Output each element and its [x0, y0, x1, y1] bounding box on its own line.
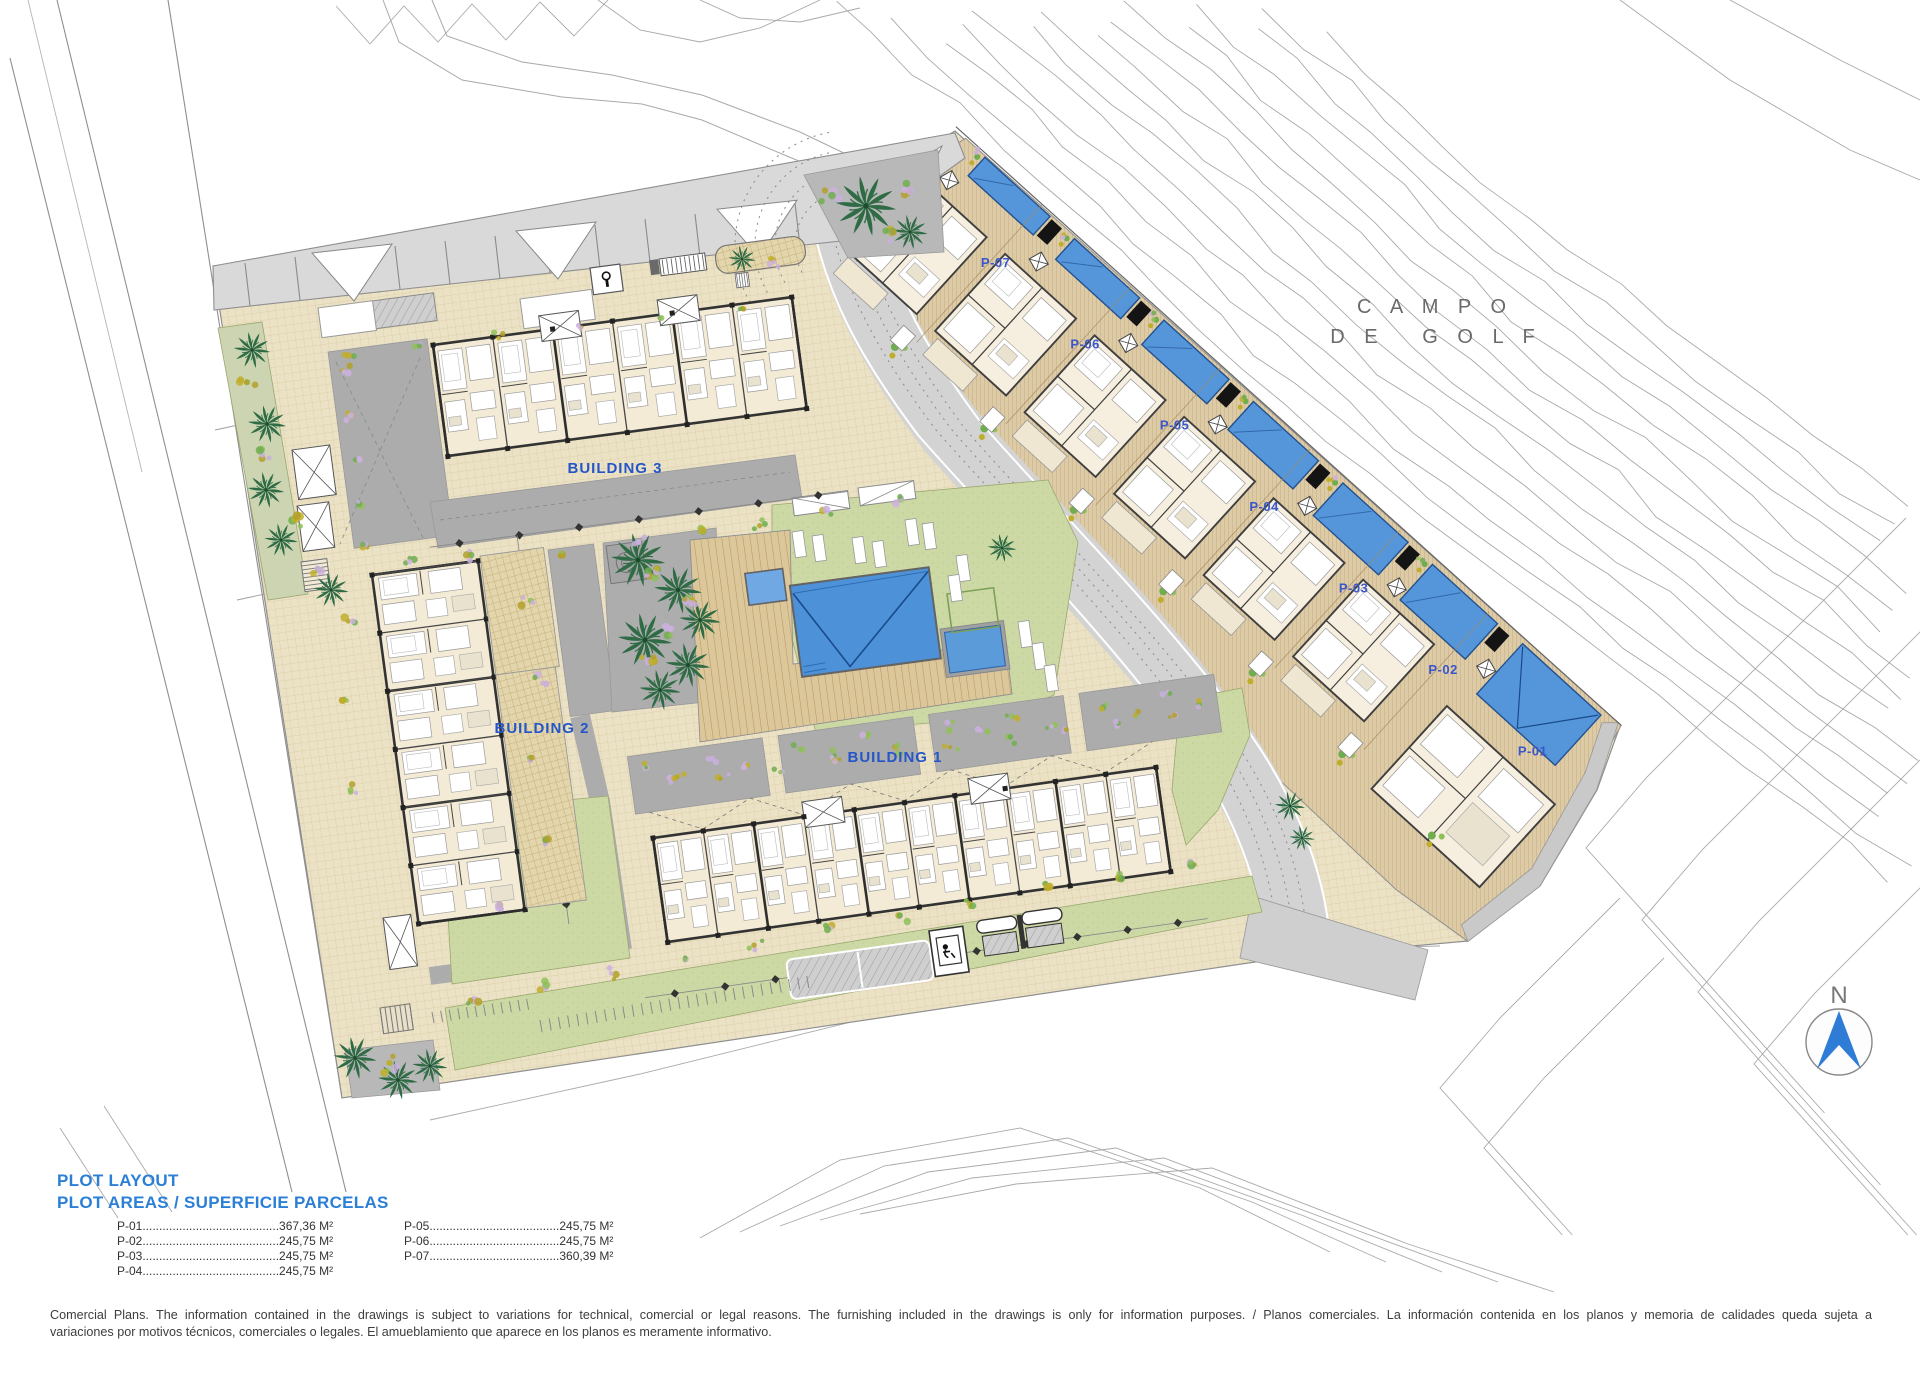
svg-text:P-07: P-07 — [981, 255, 1010, 270]
svg-text:BUILDING 1: BUILDING 1 — [847, 749, 942, 766]
svg-text:P-03: P-03 — [1339, 581, 1368, 596]
svg-text:P-06: P-06 — [1070, 336, 1099, 351]
svg-text:BUILDING 3: BUILDING 3 — [567, 460, 662, 477]
svg-text:P-02: P-02 — [1428, 662, 1457, 677]
svg-text:N: N — [1830, 982, 1847, 1009]
svg-text:P-01: P-01 — [1518, 743, 1547, 758]
svg-text:BUILDING 2: BUILDING 2 — [494, 720, 589, 737]
svg-text:D E G O L F: D E G O L F — [1330, 326, 1541, 348]
svg-text:P-04: P-04 — [1249, 499, 1279, 514]
svg-text:P-05: P-05 — [1160, 418, 1189, 433]
svg-text:C A M P O: C A M P O — [1357, 296, 1513, 318]
